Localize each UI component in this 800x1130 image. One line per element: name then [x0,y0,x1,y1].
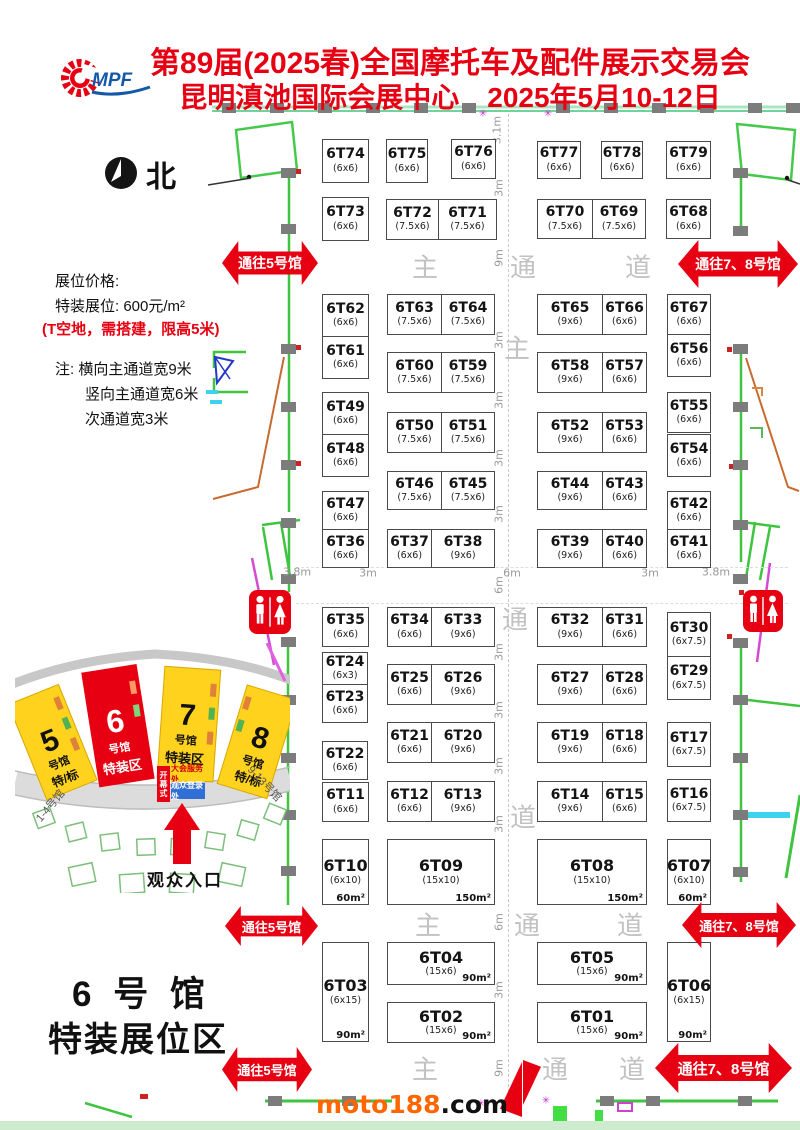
structural-column [733,344,748,354]
structural-column [268,1096,282,1106]
corridor-glyph: 通 [542,1050,568,1087]
booth-6T04: 6T04(15x6)90m² [387,942,495,985]
booth-id: 6T69 [600,205,639,220]
booth-6T50: 6T50(7.5x6) [387,412,442,453]
booth-6T24: 6T24(6x3) [322,652,368,685]
booth-size: (9x6) [450,550,475,562]
booth-id: 6T15 [605,788,644,803]
hall-title-line2: 特装展位区 [48,1012,228,1061]
booth-size: (6x3) [332,670,357,682]
booth-size: (9x6) [557,550,582,562]
booth-id: 6T52 [551,419,590,434]
booth-id: 6T55 [670,399,709,414]
booth-6T27: 6T27(9x6) [537,664,603,705]
structural-column [646,1096,660,1106]
booth-6T66: 6T66(6x6) [602,294,647,335]
booth-id: 6T62 [326,302,365,317]
booth-6T54: 6T54(6x6) [667,434,711,477]
visitor-entrance-arrow [164,803,200,864]
booth-6T65: 6T65(9x6) [537,294,603,335]
booth-6T61: 6T61(6x6) [322,336,369,379]
booth-size: (6x6) [612,744,637,756]
booth-id: 6T64 [449,301,488,316]
booth-6T42: 6T42(6x6) [667,491,711,530]
booth-6T03: 6T03(6x15)90m² [322,942,369,1042]
booth-area: 90m² [614,1031,643,1042]
corridor-glyph: 通 [502,600,528,637]
booth-size: (6x6) [333,457,358,469]
booth-size: (6x6) [333,317,358,329]
structural-column [733,168,748,178]
booth-id: 6T51 [449,419,488,434]
booth-size: (6x6) [609,162,634,174]
booth-id: 6T17 [670,731,709,746]
booth-size: (6x6) [333,221,358,233]
booth-id: 6T39 [551,535,590,550]
booth-id: 6T41 [670,535,709,550]
booth-id: 6T43 [605,477,644,492]
structural-column [281,518,296,528]
booth-size: (6x7.5) [672,636,706,648]
booth-id: 6T56 [670,342,709,357]
booth-6T05: 6T05(15x6)90m² [537,942,647,985]
visitor-entrance-label: 观众入口 [146,870,223,890]
dimension-label: 3m [641,567,659,580]
booth-6T28: 6T28(6x6) [602,664,647,705]
booth-id: 6T10 [323,857,367,875]
structural-column [733,226,748,236]
booth-6T55: 6T55(6x6) [667,392,711,433]
structural-column [733,520,748,530]
booth-id: 6T63 [395,301,434,316]
svg-text:7: 7 [178,698,197,732]
booth-6T76: 6T76(6x6) [451,139,496,179]
dimension-label: 3m [359,567,377,580]
booth-id: 6T49 [326,400,365,415]
booth-size: (7.5x6) [395,221,429,233]
corridor-glyph: 主 [412,248,438,285]
booth-size: (9x6) [557,686,582,698]
booth-size: (9x6) [557,629,582,641]
booth-size: (6x10) [330,875,361,887]
booth-id: 6T12 [390,788,429,803]
booth-size: (6x6) [676,512,701,524]
booth-id: 6T01 [570,1008,614,1026]
booth-6T68: 6T68(6x6) [666,199,711,239]
dimension-label: 3m [493,391,506,409]
corridor-glyph: 道 [625,248,651,285]
booth-id: 6T16 [670,787,709,802]
booth-6T20: 6T20(9x6) [431,722,495,763]
pricing-price: 特装展位: 600元/m² [55,295,185,316]
booth-6T38: 6T38(9x6) [431,529,495,568]
corridor-glyph: 通 [510,248,536,285]
visitor-registration-badge: 观众登录处 [171,783,205,799]
booth-6T46: 6T46(7.5x6) [387,471,442,510]
booth-id: 6T59 [449,359,488,374]
booth-size: (7.5x6) [397,316,431,328]
booth-id: 6T35 [326,613,365,628]
booth-id: 6T05 [570,949,614,967]
pricing-note-2: 竖向主通道宽6米 [85,383,198,404]
booth-size: (6x6) [676,357,701,369]
booth-6T22: 6T22(6x6) [322,741,368,780]
booth-id: 6T03 [323,977,367,995]
booth-id: 6T28 [605,671,644,686]
booth-size: (6x6) [612,686,637,698]
booth-6T06: 6T06(6x15)90m² [667,942,711,1042]
booth-6T70: 6T70(7.5x6) [537,199,593,239]
booth-id: 6T45 [449,477,488,492]
cmpf-logo: MPF [58,46,158,106]
booth-size: (6x6) [397,744,422,756]
booth-size: (6x15) [330,995,361,1007]
booth-6T37: 6T37(6x6) [387,529,432,568]
booth-size: (6x6) [333,804,358,816]
booth-size: (9x6) [557,316,582,328]
booth-id: 6T66 [605,301,644,316]
booth-6T11: 6T11(6x6) [322,782,369,822]
corridor-glyph: 通 [514,906,540,943]
booth-id: 6T29 [670,664,709,679]
booth-6T48: 6T48(6x6) [322,434,369,477]
booth-id: 6T33 [444,613,483,628]
structural-column [786,103,800,113]
booth-size: (6x6) [332,762,357,774]
booth-size: (6x15) [673,995,704,1007]
booth-id: 6T77 [540,146,579,161]
booth-6T67: 6T67(6x6) [667,294,711,335]
booth-id: 6T27 [551,671,590,686]
booth-id: 6T36 [326,535,365,550]
dimension-label: 3m [493,179,506,197]
booth-size: (6x6) [397,803,422,815]
booth-id: 6T32 [551,613,590,628]
booth-id: 6T71 [448,206,487,221]
booth-6T13: 6T13(9x6) [431,781,495,822]
booth-id: 6T31 [605,613,644,628]
structural-column [281,168,296,178]
booth-id: 6T58 [551,359,590,374]
booth-size: (15x10) [573,875,610,887]
booth-size: (15x6) [576,966,607,978]
booth-6T15: 6T15(6x6) [602,781,647,822]
booth-area: 150m² [607,893,643,904]
structural-column [281,344,296,354]
booth-6T75: 6T75(6x6) [386,139,428,183]
booth-size: (7.5x6) [451,492,485,504]
booth-6T32: 6T32(9x6) [537,607,603,647]
booth-size: (6x6) [333,550,358,562]
exhibition-floor-plan: MPF 第89届(2025春)全国摩托车及配件展示交易会 昆明滇池国际会展中心 … [0,0,800,1130]
booth-6T63: 6T63(7.5x6) [387,294,442,335]
booth-6T23: 6T23(6x6) [322,684,368,723]
booth-id: 6T06 [667,977,711,995]
booth-6T31: 6T31(6x6) [602,607,647,647]
structural-column [281,460,296,470]
booth-id: 6T74 [326,147,365,162]
survey-marker-icon: ✳ [542,1096,550,1107]
booth-size: (6x6) [546,162,571,174]
structural-column [733,402,748,412]
booth-size: (6x7.5) [672,746,706,758]
booth-size: (7.5x6) [451,316,485,328]
booth-size: (7.5x6) [397,492,431,504]
booth-id: 6T47 [326,497,365,512]
structural-column [600,1096,614,1106]
booth-6T64: 6T64(7.5x6) [441,294,495,335]
booth-6T33: 6T33(9x6) [431,607,495,647]
booth-6T18: 6T18(6x6) [602,722,647,763]
booth-6T17: 6T17(6x7.5) [667,722,711,767]
booth-size: (6x6) [612,374,637,386]
booth-id: 6T30 [670,621,709,636]
booth-6T35: 6T35(6x6) [322,607,369,647]
booth-6T69: 6T69(7.5x6) [592,199,646,239]
booth-area: 90m² [678,1030,707,1041]
booth-id: 6T38 [444,535,483,550]
booth-size: (6x10) [673,875,704,887]
booth-id: 6T25 [390,671,429,686]
structural-column [733,460,748,470]
watermark-name: moto188 [316,1090,441,1119]
survey-marker-icon: ✳ [479,109,487,120]
booth-area: 60m² [336,893,365,904]
booth-size: (6x6) [333,163,358,175]
booth-id: 6T53 [605,419,644,434]
booth-6T41: 6T41(6x6) [667,529,711,568]
booth-size: (6x6) [333,629,358,641]
booth-6T21: 6T21(6x6) [387,722,432,763]
corridor-glyph: 主 [504,329,530,366]
booth-size: (6x6) [397,629,422,641]
booth-area: 60m² [678,893,707,904]
booth-id: 6T18 [605,729,644,744]
booth-6T10: 6T10(6x10)60m² [322,839,369,905]
booth-id: 6T02 [419,1008,463,1026]
structural-column [738,1096,752,1106]
booth-size: (6x6) [676,316,701,328]
booth-6T71: 6T71(7.5x6) [438,199,497,240]
booth-size: (7.5x6) [397,374,431,386]
booth-6T78: 6T78(6x6) [601,141,643,179]
logo-text: MPF [92,70,134,91]
booth-6T09: 6T09(15x10)150m² [387,839,495,905]
booth-id: 6T61 [326,344,365,359]
booth-6T02: 6T02(15x6)90m² [387,1002,495,1043]
booth-size: (15x6) [425,1025,456,1037]
watermark-tld: .com [441,1090,509,1119]
booth-id: 6T78 [603,146,642,161]
booth-id: 6T44 [551,477,590,492]
pricing-note-red: (T空地，需搭建，限高5米) [42,318,220,339]
booth-6T01: 6T01(15x6)90m² [537,1002,647,1043]
booth-6T14: 6T14(9x6) [537,781,603,822]
booth-size: (6x6) [333,415,358,427]
booth-6T08: 6T08(15x10)150m² [537,839,647,905]
corridor-glyph: 道 [617,906,643,943]
booth-size: (6x6) [612,492,637,504]
booth-6T29: 6T29(6x7.5) [667,656,711,700]
booth-size: (6x6) [612,434,637,446]
dimension-label: 3.8m [283,566,311,579]
booth-area: 90m² [462,1031,491,1042]
corridor-glyph: 道 [619,1050,645,1087]
booth-size: (9x6) [557,744,582,756]
booth-id: 6T19 [551,729,590,744]
booth-id: 6T76 [454,145,493,160]
booth-id: 6T24 [326,655,365,670]
booth-id: 6T48 [326,442,365,457]
booth-id: 6T72 [393,206,432,221]
booth-6T47: 6T47(6x6) [322,491,369,530]
booth-6T19: 6T19(9x6) [537,722,603,763]
booth-id: 6T73 [326,205,365,220]
booth-id: 6T22 [326,747,365,762]
pricing-note-1: 注: 横向主通道宽9米 [55,358,192,379]
booth-id: 6T04 [419,949,463,967]
booth-6T12: 6T12(6x6) [387,781,432,822]
booth-size: (7.5x6) [450,221,484,233]
structural-column [733,810,748,820]
booth-id: 6T60 [395,359,434,374]
booth-size: (6x7.5) [672,802,706,814]
booth-6T58: 6T58(9x6) [537,352,603,393]
booth-area: 90m² [336,1030,365,1041]
booth-size: (15x6) [425,966,456,978]
booth-6T43: 6T43(6x6) [602,471,647,510]
booth-id: 6T11 [326,788,365,803]
booth-size: (7.5x6) [451,374,485,386]
booth-size: (9x6) [557,374,582,386]
booth-6T45: 6T45(7.5x6) [441,471,495,510]
booth-id: 6T65 [551,301,590,316]
booth-area: 150m² [455,893,491,904]
booth-size: (6x6) [332,705,357,717]
booth-id: 6T26 [444,671,483,686]
booth-size: (9x6) [450,803,475,815]
pricing-note-3: 次通道宽3米 [85,408,168,429]
booth-id: 6T75 [388,147,427,162]
booth-6T36: 6T36(6x6) [322,529,369,568]
booth-area: 90m² [462,973,491,984]
booth-6T44: 6T44(9x6) [537,471,603,510]
booth-6T60: 6T60(7.5x6) [387,352,442,393]
dimension-label: 9m [493,1059,506,1077]
hall-title-line1: 6 号 馆 [72,966,211,1017]
booth-id: 6T08 [570,857,614,875]
north-compass-icon [104,156,138,190]
booth-size: (6x6) [461,161,486,173]
booth-id: 6T57 [605,359,644,374]
structural-column [281,224,296,234]
booth-6T59: 6T59(7.5x6) [441,352,495,393]
booth-size: (6x6) [397,550,422,562]
booth-size: (6x6) [333,512,358,524]
booth-6T40: 6T40(6x6) [602,529,647,568]
booth-size: (6x6) [676,221,701,233]
booth-6T74: 6T74(6x6) [322,139,369,183]
dimension-label: 9m [493,249,506,267]
booth-size: (6x6) [397,686,422,698]
dimension-label: 6m [503,567,521,580]
booth-id: 6T23 [326,690,365,705]
booth-6T34: 6T34(6x6) [387,607,432,647]
booth-6T49: 6T49(6x6) [322,392,369,435]
booth-size: (7.5x6) [602,221,636,233]
booth-size: (9x6) [557,803,582,815]
dimension-label: 6m [493,913,506,931]
booth-size: (15x6) [576,1025,607,1037]
booth-6T16: 6T16(6x7.5) [667,779,711,822]
booth-id: 6T20 [444,729,483,744]
booth-size: (9x6) [450,686,475,698]
booth-6T30: 6T30(6x7.5) [667,612,711,657]
booth-size: (15x10) [422,875,459,887]
booth-id: 6T70 [546,205,585,220]
booth-id: 6T09 [419,857,463,875]
booth-size: (7.5x6) [548,221,582,233]
booth-id: 6T46 [395,477,434,492]
subaisle-guideline-bottom [296,603,788,604]
corridor-glyph: 道 [510,798,536,835]
booth-id: 6T14 [551,788,590,803]
booth-id: 6T42 [670,497,709,512]
booth-size: (9x6) [450,744,475,756]
structural-column [733,867,748,877]
booth-size: (6x6) [612,629,637,641]
booth-6T62: 6T62(6x6) [322,294,369,337]
structural-column [733,574,748,584]
booth-id: 6T07 [667,857,711,875]
booth-6T57: 6T57(6x6) [602,352,647,393]
booth-size: (9x6) [557,434,582,446]
booth-id: 6T37 [390,535,429,550]
page-subtitle: 昆明滇池国际会展中心 2025年5月10-12日 [120,76,780,116]
venue-overview-inset: 5 号馆 特/标 6 号馆 特装区 7 号馆 特装区 8 号馆 特/ [15,643,290,893]
booth-6T51: 6T51(7.5x6) [441,412,495,453]
booth-6T79: 6T79(6x6) [666,141,711,179]
structural-column [281,402,296,412]
structural-column [733,695,748,705]
booth-size: (7.5x6) [397,434,431,446]
booth-6T07: 6T07(6x10)60m² [667,839,711,905]
booth-6T53: 6T53(6x6) [602,412,647,453]
booth-size: (9x6) [557,492,582,504]
structural-column [733,753,748,763]
booth-id: 6T68 [669,205,708,220]
booth-size: (7.5x6) [451,434,485,446]
booth-size: (6x6) [676,457,701,469]
booth-6T39: 6T39(9x6) [537,529,603,568]
pricing-title: 展位价格: [55,270,119,291]
booth-id: 6T54 [670,442,709,457]
booth-size: (6x6) [394,163,419,175]
booth-6T77: 6T77(6x6) [537,141,581,179]
booth-id: 6T67 [670,301,709,316]
survey-marker-icon: ✳ [544,109,552,120]
restroom-icon-right [743,590,783,632]
booth-size: (6x6) [676,414,701,426]
booth-6T56: 6T56(6x6) [667,334,711,377]
booth-size: (6x6) [676,162,701,174]
booth-size: (6x6) [612,316,637,328]
booth-area: 90m² [614,973,643,984]
corridor-glyph: 主 [412,1050,438,1087]
booth-6T52: 6T52(9x6) [537,412,603,453]
booth-size: (9x6) [450,629,475,641]
booth-id: 6T21 [390,729,429,744]
